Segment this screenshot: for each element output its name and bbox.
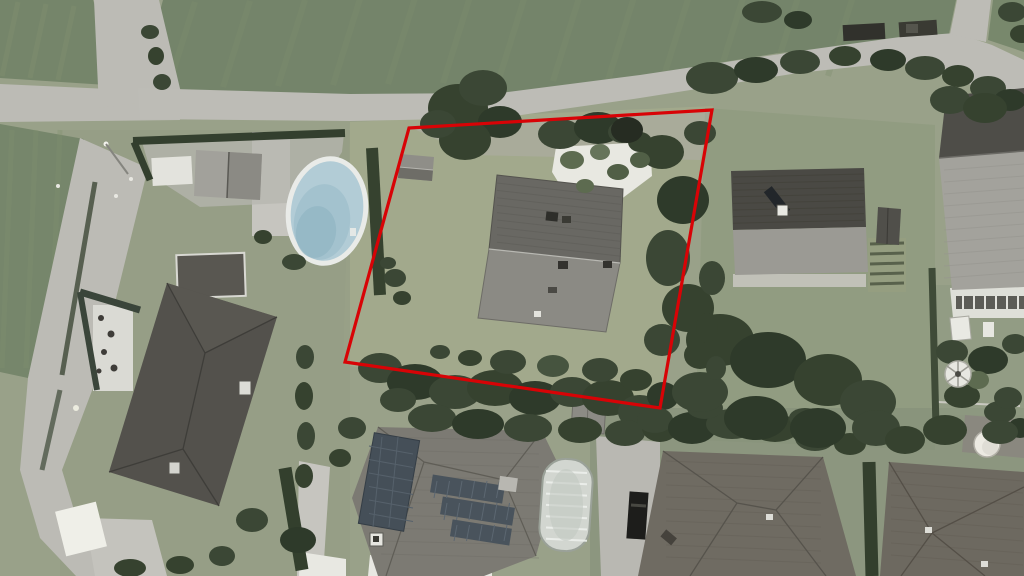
chimney	[777, 205, 788, 216]
tree	[923, 415, 967, 445]
chimney	[603, 261, 612, 268]
bush	[630, 152, 650, 168]
terrace-strip	[733, 274, 866, 287]
tree	[790, 408, 846, 448]
tree	[236, 508, 268, 532]
tree	[611, 117, 643, 143]
tree	[686, 62, 738, 94]
car	[626, 491, 648, 539]
car	[899, 20, 938, 38]
gate-post	[129, 177, 133, 181]
roof-window	[534, 311, 541, 317]
garden-rows	[870, 273, 904, 274]
tree	[942, 65, 974, 87]
tree	[706, 356, 726, 380]
tree	[329, 449, 351, 467]
tree	[684, 121, 716, 145]
tree	[742, 1, 782, 23]
garden-rows	[870, 263, 904, 264]
bush	[384, 269, 406, 287]
tree	[885, 426, 925, 454]
tree	[209, 546, 235, 566]
patio-furniture	[108, 331, 115, 338]
hedge	[372, 148, 380, 295]
white-object	[983, 322, 994, 337]
patio-furniture	[97, 369, 102, 374]
tree	[696, 313, 718, 343]
tree	[829, 46, 861, 66]
trailer	[843, 23, 886, 41]
patio-furniture	[111, 365, 118, 372]
tree	[724, 396, 788, 440]
tree	[657, 176, 709, 224]
bush	[380, 257, 396, 269]
tree	[490, 350, 526, 374]
tree	[905, 56, 945, 80]
tree	[166, 556, 194, 574]
bush	[282, 254, 306, 270]
car	[950, 316, 971, 341]
tree	[582, 358, 618, 382]
bush	[607, 164, 629, 180]
tree	[558, 417, 602, 443]
tree	[537, 355, 569, 377]
bush	[458, 350, 482, 366]
tree	[408, 404, 456, 432]
patio-furniture	[98, 315, 104, 321]
bush	[295, 464, 313, 488]
patio-furniture	[101, 349, 107, 355]
tree	[734, 57, 778, 83]
white-annex	[151, 156, 192, 186]
street-lamp-head	[73, 405, 79, 411]
tree	[452, 409, 504, 439]
tree	[994, 387, 1022, 409]
aerial-map	[0, 0, 1024, 576]
tree	[620, 369, 652, 391]
tree	[870, 49, 906, 71]
chimney	[169, 462, 180, 474]
bush	[296, 345, 314, 369]
roof-vent	[925, 527, 932, 533]
roof-vent	[981, 561, 988, 567]
chimney-flue	[373, 536, 379, 542]
car-roof	[906, 24, 918, 33]
gate-post	[114, 194, 118, 198]
pool-ladder	[350, 228, 356, 236]
bush	[936, 340, 968, 364]
roof-vent	[766, 514, 773, 520]
tree	[784, 11, 812, 29]
tree	[153, 74, 171, 90]
bush	[576, 179, 594, 193]
hedge	[869, 462, 872, 576]
tree	[280, 527, 316, 553]
tree	[459, 70, 507, 106]
garden-rows	[870, 283, 904, 284]
bush	[393, 291, 411, 305]
tree	[982, 420, 1018, 444]
chimney	[239, 381, 251, 395]
tree	[699, 261, 725, 295]
trampoline-center	[955, 371, 961, 377]
bush	[590, 144, 610, 160]
aerial-photo	[0, 0, 1024, 576]
east-house-lower-slope	[733, 227, 868, 275]
tree	[504, 414, 552, 442]
tree	[637, 407, 673, 433]
window-band	[956, 296, 1024, 309]
pool-cover-shade	[549, 469, 583, 541]
tree	[963, 93, 1007, 123]
hedge	[932, 268, 936, 428]
tree	[780, 50, 820, 74]
bush	[295, 382, 313, 410]
tree	[338, 417, 366, 439]
car-windshield	[631, 505, 646, 506]
bush	[560, 151, 584, 169]
bush	[968, 346, 1008, 374]
tree	[141, 25, 159, 39]
garden-rows	[870, 253, 904, 254]
bush	[297, 422, 315, 450]
bush	[430, 345, 450, 359]
shed-roof-slope	[227, 152, 262, 200]
chimney	[558, 261, 568, 269]
roof-vent	[548, 287, 557, 293]
tree	[148, 47, 164, 65]
roof-window	[498, 476, 518, 492]
chimney	[562, 216, 571, 223]
bush	[254, 230, 272, 244]
ne-house-lower-slope	[939, 151, 1024, 290]
gate-post	[56, 184, 60, 188]
chimney	[546, 211, 559, 221]
tree	[380, 388, 416, 412]
small-shed-roof	[876, 207, 901, 245]
